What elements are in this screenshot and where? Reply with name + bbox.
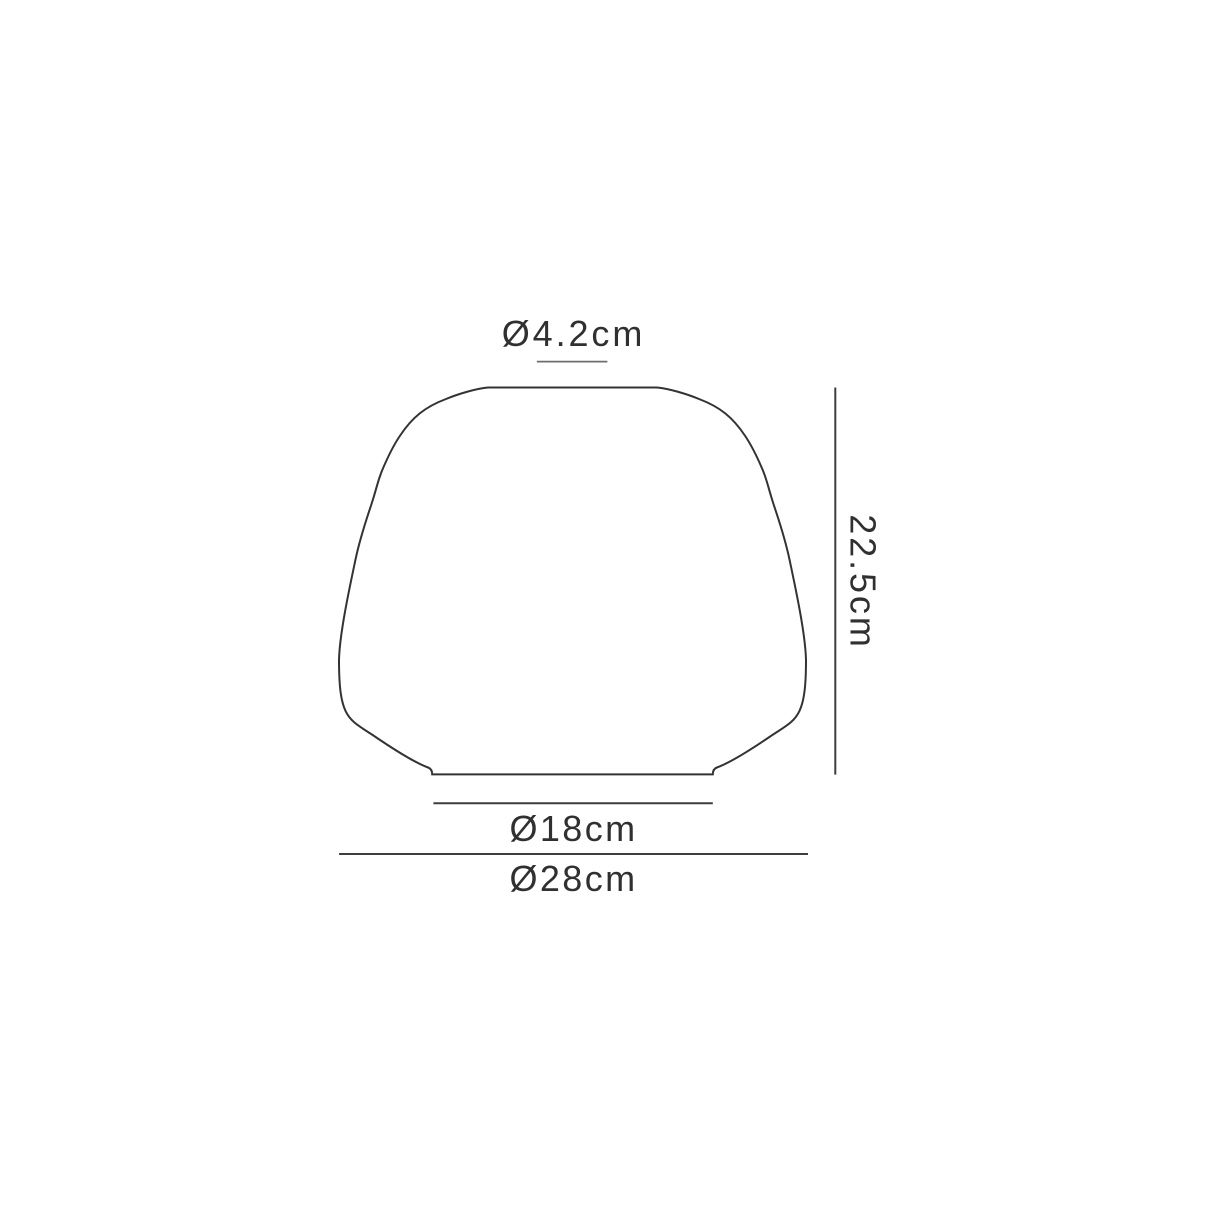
svg-text:22.5cm: 22.5cm	[843, 514, 884, 649]
svg-text:Ø4.2cm: Ø4.2cm	[502, 313, 645, 354]
svg-text:Ø28cm: Ø28cm	[509, 858, 637, 899]
svg-text:Ø18cm: Ø18cm	[509, 808, 637, 849]
